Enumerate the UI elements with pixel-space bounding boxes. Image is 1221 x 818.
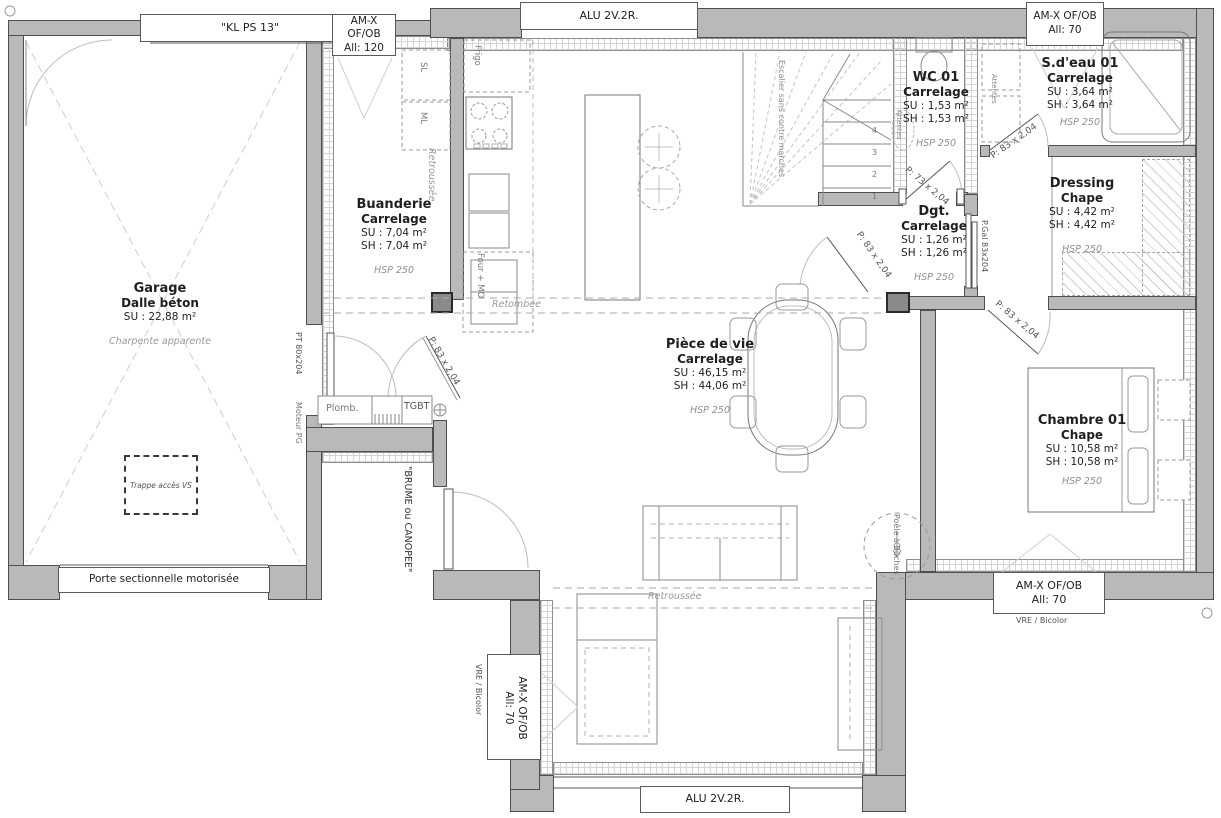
- room-label-dressing: Dressing Chape SU : 4,42 m² SH : 4,42 m²…: [1049, 176, 1115, 255]
- piece-name: Pièce de vie: [666, 337, 754, 352]
- amx70-left-line2: All: 70: [502, 691, 515, 724]
- window-label-alu-bottom: ALU 2V.2R.: [640, 786, 790, 813]
- dressing-su: SU : 4,42 m²: [1049, 206, 1115, 218]
- entry-door-linework: [444, 489, 528, 569]
- trappe-box: Trappe accès VS: [124, 455, 198, 515]
- poele-label: Poêle à Bûches: [892, 514, 901, 580]
- dressing-hsp: HSP 250: [1049, 244, 1115, 255]
- step-number-3: 3: [872, 148, 877, 157]
- plan-linework: [0, 0, 1221, 818]
- amx70-right-line2: All: 70: [1032, 593, 1067, 607]
- frigo-label: Frigo: [472, 45, 482, 85]
- garage-door-label: Porte sectionnelle motorisée: [58, 567, 270, 593]
- kitchen-fixtures: [463, 40, 680, 332]
- dgt-hsp: HSP 250: [901, 272, 967, 283]
- amx120-line1: AM-X OF/OB: [333, 15, 395, 42]
- garage-note: Charpente apparente: [109, 336, 211, 347]
- door-label-pgal: P.Gal 83x204: [980, 220, 989, 286]
- room-label-sdeau01: S.d'eau 01 Carrelage SU : 3,64 m² SH : 3…: [1041, 56, 1118, 128]
- step-number-1: 1: [872, 192, 877, 201]
- room-label-piece-de-vie: Pièce de vie Carrelage SU : 46,15 m² SH …: [666, 337, 754, 416]
- amx70-top-line1: AM-X OF/OB: [1033, 10, 1096, 24]
- room-label-dgt: Dgt. Carrelage SU : 1,26 m² SH : 1,26 m²…: [901, 204, 967, 283]
- trappe-text: Trappe accès VS: [130, 481, 192, 490]
- garage-floor: Dalle béton: [121, 296, 199, 310]
- garage-name: Garage: [121, 281, 199, 296]
- sdeau01-su: SU : 3,64 m²: [1041, 86, 1118, 98]
- wc01-name: WC 01: [903, 70, 969, 85]
- room-label-wc01: WC 01 Carrelage SU : 1,53 m² SH : 1,53 m…: [903, 70, 969, 149]
- dressing-name: Dressing: [1049, 176, 1115, 191]
- moteur-pg-label: Moteur PG: [294, 402, 303, 458]
- garage-door-text: Porte sectionnelle motorisée: [89, 573, 239, 587]
- window-label-amx70-left: AM-X OF/OB All: 70: [487, 654, 541, 760]
- brume-canopee-label: "BRUME ou CANOPEE": [402, 466, 413, 586]
- dgt-su: SU : 1,26 m²: [901, 234, 967, 246]
- window-label-alu-top: ALU 2V.2R.: [520, 2, 698, 30]
- four-mo-label: Four + MO: [475, 253, 485, 305]
- step-number-4: 4: [872, 126, 877, 135]
- room-label-garage: Garage Dalle béton SU : 22,88 m²: [121, 281, 199, 323]
- amx120-line2: All: 120: [344, 42, 384, 56]
- window-label-amx70-top: AM-X OF/OB All: 70: [1026, 2, 1104, 46]
- window-label-kl-ps13: "KL PS 13": [140, 14, 360, 42]
- room-label-chambre01: Chambre 01 Chape SU : 10,58 m² SH : 10,5…: [1038, 413, 1126, 487]
- escalier-label: Escalier sans contre marches: [777, 60, 786, 186]
- alu-top-text: ALU 2V.2R.: [579, 9, 638, 23]
- dressing-sh: SH : 4,42 m²: [1049, 219, 1115, 231]
- floor-plan: "KL PS 13" AM-X OF/OB All: 120 ALU 2V.2R…: [0, 0, 1221, 818]
- piece-hsp: HSP 250: [666, 405, 754, 416]
- step-number-2: 2: [872, 170, 877, 179]
- wc01-hsp: HSP 250: [903, 138, 969, 149]
- tgbt-label: TGBT: [404, 401, 430, 412]
- sdeau01-hsp: HSP 250: [1041, 117, 1118, 128]
- chambre01-name: Chambre 01: [1038, 413, 1126, 428]
- chambre01-hsp: HSP 250: [1038, 476, 1126, 487]
- window-label-amx120: AM-X OF/OB All: 120: [332, 14, 396, 56]
- buanderie-name: Buanderie: [357, 197, 432, 212]
- wc01-sh: SH : 1,53 m²: [903, 113, 969, 125]
- piece-sh: SH : 44,06 m²: [666, 380, 754, 392]
- piece-su: SU : 46,15 m²: [666, 367, 754, 379]
- sdeau01-sh: SH : 3,64 m²: [1041, 99, 1118, 111]
- chambre01-floor: Chape: [1038, 428, 1126, 442]
- dgt-name: Dgt.: [901, 204, 967, 219]
- retroussee-bottom: Retroussée: [648, 591, 702, 602]
- wc01-su: SU : 1,53 m²: [903, 100, 969, 112]
- amx70-right-line1: AM-X OF/OB: [1016, 579, 1082, 593]
- amx70-left-note: VRE / Bicolor: [474, 664, 483, 715]
- garage-su: SU : 22,88 m²: [121, 311, 199, 323]
- sdeau01-name: S.d'eau 01: [1041, 56, 1118, 71]
- attentes-wc-label: Attentes: [895, 110, 903, 152]
- ml-label: ML: [418, 112, 428, 140]
- stairs-linework: [743, 52, 891, 206]
- buanderie-floor: Carrelage: [357, 212, 432, 226]
- kl-ps13-text: "KL PS 13": [221, 21, 279, 35]
- window-label-amx70-right: AM-X OF/OB All: 70: [993, 572, 1105, 614]
- piece-floor: Carrelage: [666, 352, 754, 366]
- amx70-left-rotated: AM-X OF/OB All: 70: [489, 656, 541, 760]
- buanderie-hsp: HSP 250: [357, 265, 432, 276]
- retroussee-kitchen: Retroussée: [426, 148, 437, 198]
- dressing-floor: Chape: [1049, 191, 1115, 205]
- wc01-floor: Carrelage: [903, 85, 969, 99]
- amx70-top-line2: All: 70: [1048, 24, 1081, 38]
- buanderie-sh: SH : 7,04 m²: [357, 240, 432, 252]
- retombee-label: Retombée: [492, 299, 541, 310]
- plomb-label: Plomb.: [326, 403, 359, 414]
- buanderie-su: SU : 7,04 m²: [357, 227, 432, 239]
- dgt-floor: Carrelage: [901, 219, 967, 233]
- chambre01-sh: SH : 10,58 m²: [1038, 456, 1126, 468]
- sl-label: SL: [418, 62, 428, 90]
- room-label-buanderie: Buanderie Carrelage SU : 7,04 m² SH : 7,…: [357, 197, 432, 276]
- amx70-right-note: VRE / Bicolor: [1016, 616, 1067, 625]
- sdeau01-floor: Carrelage: [1041, 71, 1118, 85]
- door-label-pt-garage: PT 80x204: [294, 332, 303, 390]
- attentes-sdeau-label: Attentes: [990, 74, 998, 116]
- alu-bottom-text: ALU 2V.2R.: [685, 792, 744, 806]
- amx70-left-line1: AM-X OF/OB: [515, 676, 528, 739]
- chambre01-su: SU : 10,58 m²: [1038, 443, 1126, 455]
- dgt-sh: SH : 1,26 m²: [901, 247, 967, 259]
